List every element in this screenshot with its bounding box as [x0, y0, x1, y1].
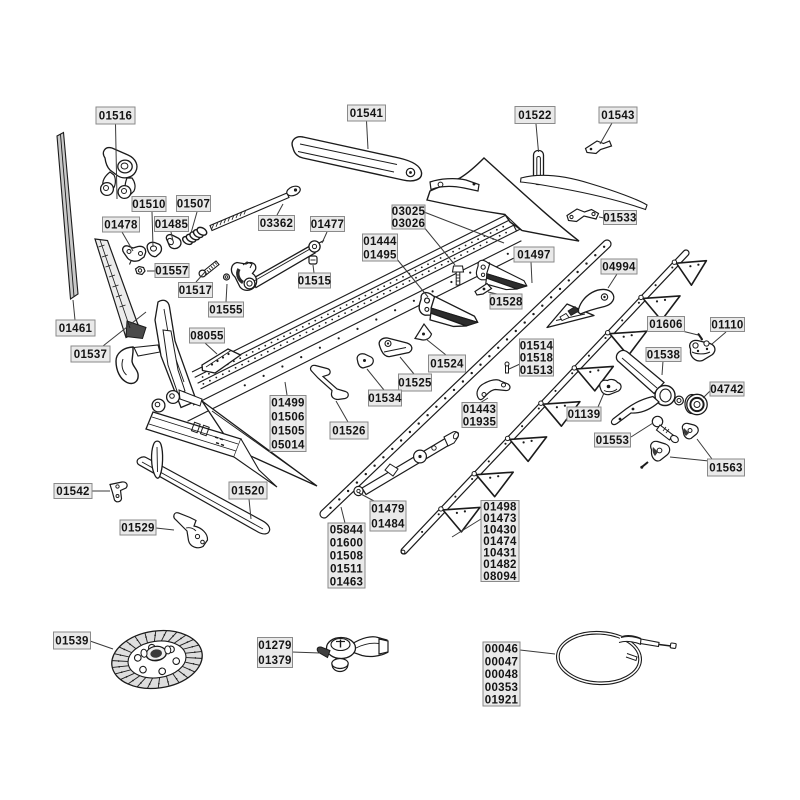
- svg-text:00353: 00353: [485, 682, 518, 694]
- svg-text:01543: 01543: [601, 110, 634, 122]
- svg-text:10431: 10431: [483, 548, 517, 560]
- svg-text:01529: 01529: [121, 523, 154, 535]
- svg-text:01516: 01516: [99, 111, 132, 123]
- svg-text:01513: 01513: [520, 365, 553, 377]
- svg-text:01505: 01505: [271, 426, 305, 438]
- svg-text:01463: 01463: [330, 577, 363, 589]
- svg-text:03362: 03362: [260, 218, 293, 230]
- svg-text:01484: 01484: [371, 519, 405, 531]
- svg-text:01443: 01443: [463, 404, 496, 416]
- svg-text:01525: 01525: [398, 378, 432, 390]
- svg-text:01508: 01508: [330, 551, 364, 563]
- svg-text:01606: 01606: [649, 319, 682, 331]
- svg-text:08094: 08094: [483, 571, 517, 583]
- svg-text:08055: 08055: [190, 331, 224, 343]
- svg-text:01526: 01526: [332, 426, 365, 438]
- svg-text:10430: 10430: [483, 525, 516, 537]
- svg-text:01534: 01534: [368, 393, 402, 405]
- svg-text:01479: 01479: [371, 504, 404, 516]
- svg-text:01498: 01498: [483, 501, 517, 513]
- svg-text:03025: 03025: [392, 206, 426, 218]
- svg-text:01485: 01485: [155, 219, 189, 231]
- svg-text:00047: 00047: [485, 656, 518, 668]
- svg-text:01555: 01555: [209, 305, 243, 317]
- svg-text:01482: 01482: [483, 559, 516, 571]
- svg-text:01600: 01600: [330, 538, 363, 550]
- svg-text:01379: 01379: [258, 655, 291, 667]
- svg-text:01497: 01497: [517, 250, 550, 262]
- svg-text:01279: 01279: [258, 640, 291, 652]
- svg-text:01477: 01477: [311, 219, 344, 231]
- svg-text:01461: 01461: [59, 323, 93, 335]
- svg-text:01537: 01537: [74, 349, 107, 361]
- svg-text:01495: 01495: [363, 249, 397, 261]
- svg-text:01921: 01921: [485, 695, 519, 707]
- svg-text:01557: 01557: [155, 266, 188, 278]
- svg-text:04994: 04994: [602, 262, 636, 274]
- svg-text:01553: 01553: [596, 435, 629, 447]
- svg-text:01474: 01474: [483, 536, 517, 548]
- svg-text:01528: 01528: [489, 297, 523, 309]
- svg-text:01524: 01524: [430, 359, 464, 371]
- svg-text:05844: 05844: [330, 525, 364, 537]
- svg-text:01511: 01511: [330, 564, 363, 576]
- svg-text:03026: 03026: [392, 218, 425, 230]
- svg-text:01444: 01444: [363, 236, 397, 248]
- svg-text:01563: 01563: [709, 463, 742, 475]
- svg-text:01538: 01538: [647, 350, 681, 362]
- svg-text:01539: 01539: [55, 636, 88, 648]
- svg-text:01518: 01518: [520, 353, 554, 365]
- svg-text:01499: 01499: [271, 398, 304, 410]
- svg-text:01520: 01520: [231, 486, 264, 498]
- svg-text:05014: 05014: [271, 440, 305, 452]
- svg-text:01514: 01514: [520, 340, 554, 352]
- svg-text:01510: 01510: [132, 199, 165, 211]
- svg-text:01542: 01542: [56, 486, 89, 498]
- svg-text:01506: 01506: [271, 412, 304, 424]
- svg-text:01473: 01473: [483, 513, 516, 525]
- svg-text:01110: 01110: [711, 320, 743, 332]
- svg-text:01478: 01478: [104, 220, 138, 232]
- svg-text:01935: 01935: [463, 416, 497, 428]
- svg-text:01541: 01541: [350, 108, 384, 120]
- svg-text:01507: 01507: [177, 199, 210, 211]
- svg-text:01522: 01522: [518, 110, 551, 122]
- svg-text:01533: 01533: [603, 213, 636, 225]
- svg-text:00046: 00046: [485, 644, 518, 656]
- svg-text:01515: 01515: [298, 276, 332, 288]
- svg-text:00048: 00048: [485, 669, 519, 681]
- svg-text:01139: 01139: [568, 409, 601, 421]
- svg-text:04742: 04742: [710, 384, 743, 396]
- svg-text:01517: 01517: [179, 285, 212, 297]
